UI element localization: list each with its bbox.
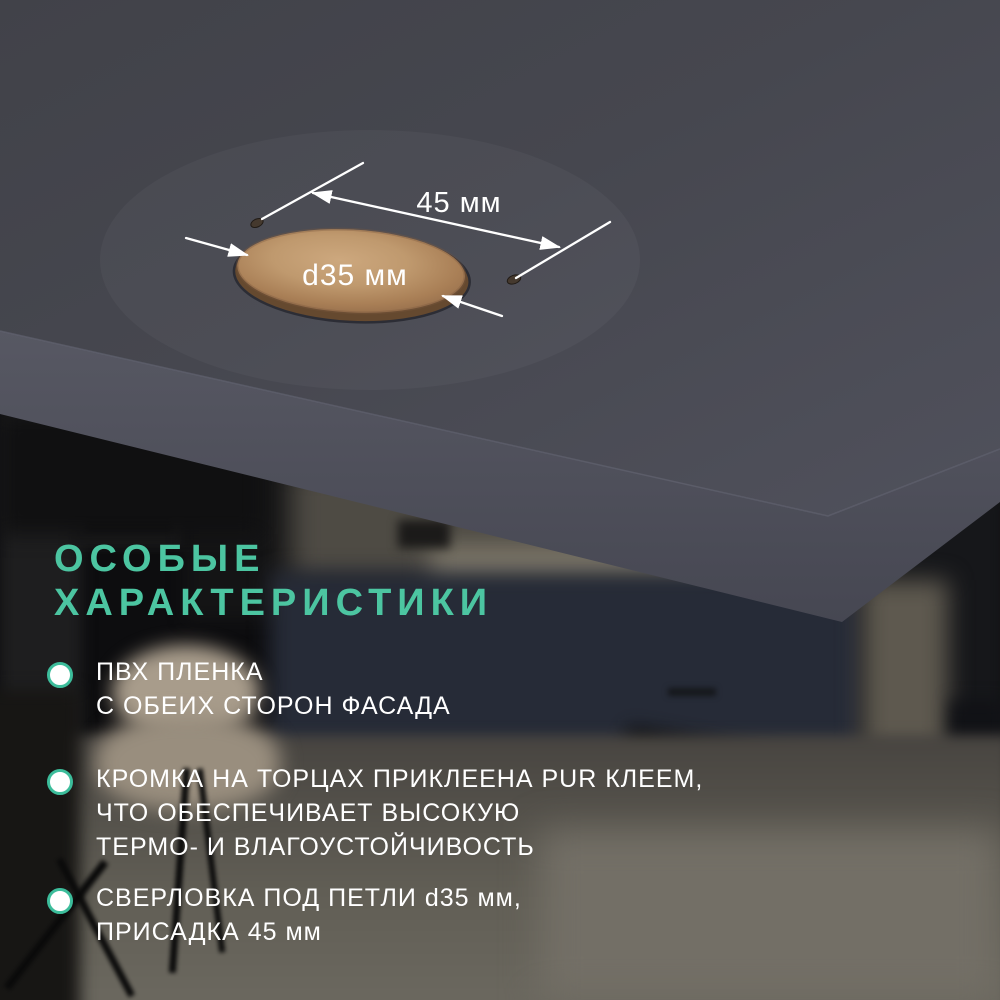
feature-line: ТЕРМО- И ВЛАГОУСТОЙЧИВОСТЬ (96, 830, 703, 864)
product-infographic: 45 мм d35 мм ОСОБЫЕ ХАРАКТЕРИСТИКИ ПВХ П… (0, 0, 1000, 1000)
feature-line: КРОМКА НА ТОРЦАХ ПРИКЛЕЕНА PUR КЛЕЕМ, (96, 762, 703, 796)
feature-line: ЧТО ОБЕСПЕЧИВАЕТ ВЫСОКУЮ (96, 796, 703, 830)
feature-text: СВЕРЛОВКА ПОД ПЕТЛИ d35 мм, ПРИСАДКА 45 … (96, 881, 522, 949)
text-content: ОСОБЫЕ ХАРАКТЕРИСТИКИ ПВХ ПЛЕНКА С ОБЕИХ… (0, 0, 1000, 1000)
bullet-marker (47, 769, 73, 795)
section-heading: ОСОБЫЕ ХАРАКТЕРИСТИКИ (54, 537, 493, 625)
feature-line: СВЕРЛОВКА ПОД ПЕТЛИ d35 мм, (96, 881, 522, 915)
feature-line: ПРИСАДКА 45 мм (96, 915, 522, 949)
heading-line-2: ХАРАКТЕРИСТИКИ (54, 581, 493, 625)
feature-item-drilling: СВЕРЛОВКА ПОД ПЕТЛИ d35 мм, ПРИСАДКА 45 … (47, 881, 522, 949)
feature-line: С ОБЕИХ СТОРОН ФАСАДА (96, 689, 451, 723)
feature-line: ПВХ ПЛЕНКА (96, 655, 451, 689)
bullet-marker (47, 888, 73, 914)
feature-text: ПВХ ПЛЕНКА С ОБЕИХ СТОРОН ФАСАДА (96, 655, 451, 723)
feature-item-pvc-film: ПВХ ПЛЕНКА С ОБЕИХ СТОРОН ФАСАДА (47, 655, 451, 723)
heading-line-1: ОСОБЫЕ (54, 537, 493, 581)
bullet-marker (47, 662, 73, 688)
feature-item-pur-edge: КРОМКА НА ТОРЦАХ ПРИКЛЕЕНА PUR КЛЕЕМ, ЧТ… (47, 762, 703, 864)
feature-text: КРОМКА НА ТОРЦАХ ПРИКЛЕЕНА PUR КЛЕЕМ, ЧТ… (96, 762, 703, 864)
